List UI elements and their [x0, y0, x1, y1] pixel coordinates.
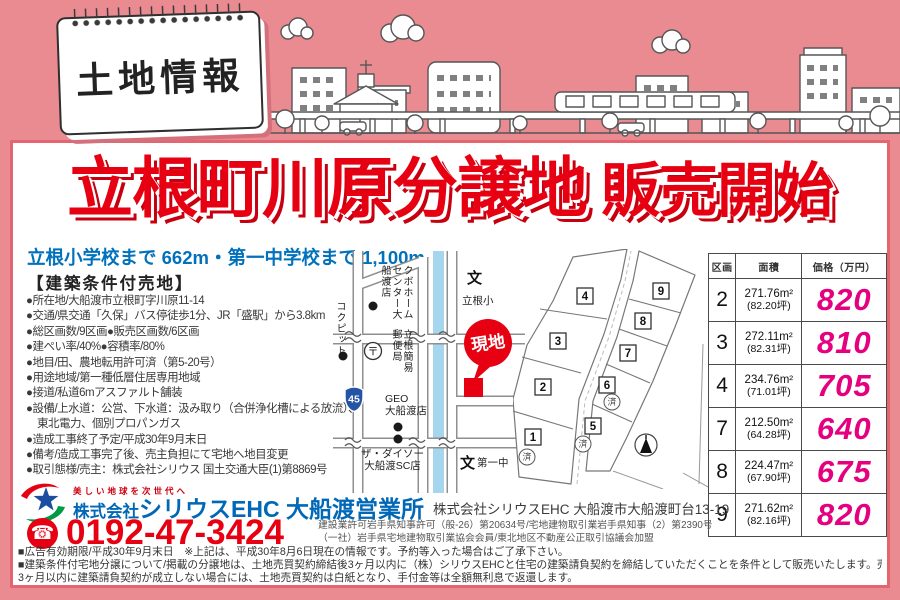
lot-cell: 8 [709, 451, 736, 494]
north-arrow-icon [635, 434, 657, 456]
svg-text:8: 8 [640, 316, 647, 328]
lot-cell: 2 [709, 279, 736, 322]
lot-9: 9 [653, 283, 669, 299]
condition-item: ●接道/私道6mアスファルト舗装 [26, 386, 359, 401]
table-row: 2 271.76m²(82.20坪) 820 [709, 279, 887, 322]
svg-text:済: 済 [522, 451, 531, 462]
price-cell: 640 [802, 408, 887, 451]
table-row: 3 272.11m²(82.31坪) 810 [709, 322, 887, 365]
svg-text:〒: 〒 [368, 346, 379, 358]
company-address: 株式会社シリウスEHC 大船渡市大船渡町台13-19 [433, 498, 729, 518]
condition-item: ●所在地/大船渡市立根町字川原11-14 [26, 294, 359, 309]
license-info: 建設業許可岩手県知事許可（般-26）第20634号/宅地建物取引業岩手県知事（2… [318, 519, 713, 545]
phone-icon: ☎ [27, 518, 58, 549]
svg-text:9: 9 [658, 286, 664, 298]
map-label-kubo-home-center: クボホームセンター大船渡店 [379, 265, 412, 321]
svg-text:6: 6 [604, 380, 610, 392]
access-map: 〒 45 現地 クボホームセンター大船渡店 コクピット 立根簡易郵便局 文 立根… [333, 251, 525, 509]
price-cell: 810 [802, 322, 887, 365]
title-main: 立根町川原分譲地 [67, 151, 587, 225]
svg-text:2: 2 [540, 382, 546, 394]
header-price: 価格（万円） [802, 254, 887, 279]
area-cell: 271.76m²(82.20坪) [736, 279, 802, 322]
lot-5: 5 [585, 418, 601, 434]
condition-item: ●備考/造成工事完了後、売主負担にて宅地へ地目変更 [26, 448, 359, 463]
area-cell: 212.50m²(64.28坪) [736, 408, 802, 451]
svg-text:3: 3 [555, 336, 561, 348]
map-label-post-office: 立根簡易郵便局 [390, 329, 412, 375]
school-mark-icon: 文 [467, 267, 482, 288]
conditions-heading: 【建築条件付売地】 [27, 270, 194, 294]
lot-2: 2 [535, 379, 551, 395]
table-row: 7 212.50m²(64.28坪) 640 [709, 408, 887, 451]
main-card: 立根町川原分譲地販売開始 立根小学校まで 662m・第一中学校まで 1,100m… [10, 140, 890, 588]
condition-item: ●交通/県交通「久保」バス停徒歩1分、JR「盛駅」から3.8km [26, 309, 359, 324]
sign-title: 土地情報 [59, 45, 261, 106]
svg-text:4: 4 [582, 291, 589, 303]
price-table: 区画 面積 価格（万円） 2 271.76m²(82.20坪) 820 3 27… [708, 253, 887, 537]
condition-item: ●建ぺい率/40%●容積率/80% [26, 340, 359, 355]
lot-diagram: 1 2 3 4 5 6 7 8 9 済 済 済 [513, 249, 708, 489]
condition-item: ●造成工事終了予定/平成30年9月末日 [26, 433, 359, 448]
svg-text:7: 7 [625, 348, 631, 360]
header-area: 面積 [736, 254, 802, 279]
table-row: 9 271.62m²(82.16坪) 820 [709, 494, 887, 537]
map-label-junior-high: 第一中 [477, 457, 509, 469]
header-lot: 区画 [709, 254, 736, 279]
condition-item: ●取引態様/売主：株式会社シリウス 国土交通大臣(1)第8869号 [26, 463, 359, 478]
lot-4: 4 [577, 288, 593, 304]
condition-item: ●設備/上水道：公営、下水道：汲み取り（合併浄化槽による放流）、 [26, 402, 359, 417]
route-45-shield: 45 [345, 387, 363, 412]
page-title: 立根町川原分譲地販売開始 [13, 147, 887, 232]
price-cell: 705 [802, 365, 887, 408]
map-label-cockpit: コクピット [334, 301, 345, 359]
post-office-icon: 〒 [365, 343, 382, 360]
sold-mark-lot-5: 済 [575, 436, 591, 452]
river [433, 251, 444, 493]
site-marker: 現地 [464, 319, 512, 397]
price-cell: 820 [802, 279, 887, 322]
land-flyer: 土地情報 立根町川原分譲地販売開始 立根小学校まで 662m・第一中学校まで 1… [0, 0, 900, 600]
price-cell: 675 [802, 451, 887, 494]
svg-text:済: 済 [607, 396, 616, 407]
lot-7: 7 [620, 345, 636, 361]
map-label-geo: GEO 大船渡店 [385, 393, 427, 417]
svg-text:済: 済 [578, 438, 587, 449]
condition-item: 東北電力、個別プロパンガス [26, 417, 359, 432]
school-mark-icon: 文 [460, 452, 475, 473]
lot-3: 3 [550, 333, 566, 349]
lot-6: 6 [599, 377, 615, 393]
sold-mark-lot-6: 済 [604, 394, 620, 410]
table-row: 8 224.47m²(67.90坪) 675 [709, 451, 887, 494]
lot-cell: 4 [709, 365, 736, 408]
land-info-sign: 土地情報 [56, 10, 264, 135]
conditions-list: ●所在地/大船渡市立根町字川原11-14 ●交通/県交通「久保」バス停徒歩1分、… [26, 294, 359, 479]
svg-text:1: 1 [530, 432, 537, 444]
title-sub: 販売開始 [601, 158, 833, 224]
area-cell: 224.47m²(67.90坪) [736, 451, 802, 494]
map-label-elementary: 立根小 [462, 295, 494, 307]
area-cell: 272.11m²(82.31坪) [736, 322, 802, 365]
lot-1: 1 [525, 429, 541, 445]
condition-item: ●地目/田、農地転用許可済（第5-20号） [26, 356, 359, 371]
lot-cell: 3 [709, 322, 736, 365]
fine-print: ■広告有効期限/平成30年9月末日 ※上記は、平成30年8月6日現在の情報です。… [18, 546, 882, 586]
price-cell: 820 [802, 494, 887, 537]
area-cell: 271.62m²(82.16坪) [736, 494, 802, 537]
map-label-daiso: ザ・ダイソー 大船渡SC店 [361, 448, 424, 472]
svg-text:5: 5 [590, 421, 597, 433]
table-row: 4 234.76m²(71.01坪) 705 [709, 365, 887, 408]
lot-diagram-canvas: 1 2 3 4 5 6 7 8 9 済 済 済 [513, 249, 708, 489]
sold-mark-lot-1: 済 [519, 449, 535, 465]
area-cell: 234.76m²(71.01坪) [736, 365, 802, 408]
condition-item: ●用途地域/第一種低層住居専用地域 [26, 371, 359, 386]
cloud-icon [281, 15, 690, 53]
price-table-header: 区画 面積 価格（万円） [709, 254, 887, 279]
lot-8: 8 [635, 313, 651, 329]
city-buildings [265, 15, 900, 136]
lot-cell: 7 [709, 408, 736, 451]
condition-item: ●総区画数/9区画●販売区画数/6区画 [26, 325, 359, 340]
svg-text:45: 45 [348, 394, 360, 406]
